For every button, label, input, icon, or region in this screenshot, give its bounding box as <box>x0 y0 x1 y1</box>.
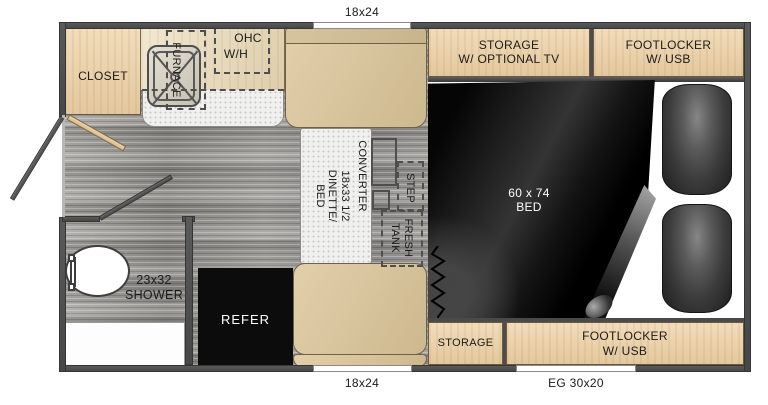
toilet-hinge-top <box>68 254 75 262</box>
window-bottom-left-label: 18x24 <box>300 376 424 390</box>
footlocker-top-label: FOOTLOCKER W/ USB <box>626 38 712 67</box>
wall-left-lower <box>59 217 66 372</box>
storage-bottom-cabinet: STORAGE <box>428 322 503 365</box>
cabinet-divider-top <box>590 27 593 77</box>
doorway-threshold <box>62 115 65 217</box>
storage-tv-label: STORAGE W/ OPTIONAL TV <box>459 38 560 67</box>
converter-label: CONVERTER <box>356 126 368 226</box>
wheel-shape-top <box>662 84 732 195</box>
window-bottom-left <box>313 365 412 372</box>
footlocker-bottom-label: FOOTLOCKER W/ USB <box>582 329 668 358</box>
footlocker-bottom-cabinet: FOOTLOCKER W/ USB <box>506 322 744 365</box>
ohc-label: OHC <box>228 31 268 45</box>
dinette-seat-bottom <box>293 263 427 355</box>
refer-box: REFER <box>198 268 293 365</box>
toilet-hinge-bottom <box>68 283 75 291</box>
step-label: STEP <box>404 171 416 205</box>
window-bottom-right-label: EG 30x20 <box>516 376 636 390</box>
wheel-shape-bottom <box>662 204 732 313</box>
wall-right <box>744 22 751 372</box>
entry-door-leaf-icon <box>10 116 64 201</box>
bed-extension-zigzag-icon <box>430 246 446 324</box>
bed-label: 60 x 74 BED <box>479 186 579 215</box>
floorplan-canvas: CLOSET FURNACE OHC W/H CONVERTER 18x33 1… <box>0 0 768 405</box>
cabinet-dashed-line <box>142 89 284 91</box>
shower-label: 23x32 SHOWER <box>118 273 190 303</box>
closet-label: CLOSET <box>65 69 141 83</box>
wh-label: W/H <box>216 47 256 61</box>
wall-left-upper <box>59 22 66 117</box>
bathroom-partition <box>185 216 193 365</box>
dinette-label: 18x33 1/2 DINETTE/ BED <box>311 161 351 231</box>
bathroom-wall-stub <box>62 216 100 222</box>
storage-bottom-label: STORAGE <box>438 337 494 350</box>
dinette-seat-top <box>285 29 427 128</box>
furnace-label: FURNACE <box>170 32 182 108</box>
fresh-tank-label: FRESH TANK <box>388 218 414 258</box>
closet-area: CLOSET <box>65 29 141 115</box>
footlocker-top-cabinet: FOOTLOCKER W/ USB <box>593 27 744 77</box>
window-top-label: 18x24 <box>300 5 424 19</box>
refer-label: REFER <box>198 312 293 328</box>
storage-tv-cabinet: STORAGE W/ OPTIONAL TV <box>428 27 590 77</box>
converter-outline <box>371 138 397 186</box>
shower-pan <box>66 322 185 365</box>
window-top <box>313 22 411 29</box>
converter-outline-small <box>372 190 390 210</box>
window-bottom-right <box>516 365 636 372</box>
